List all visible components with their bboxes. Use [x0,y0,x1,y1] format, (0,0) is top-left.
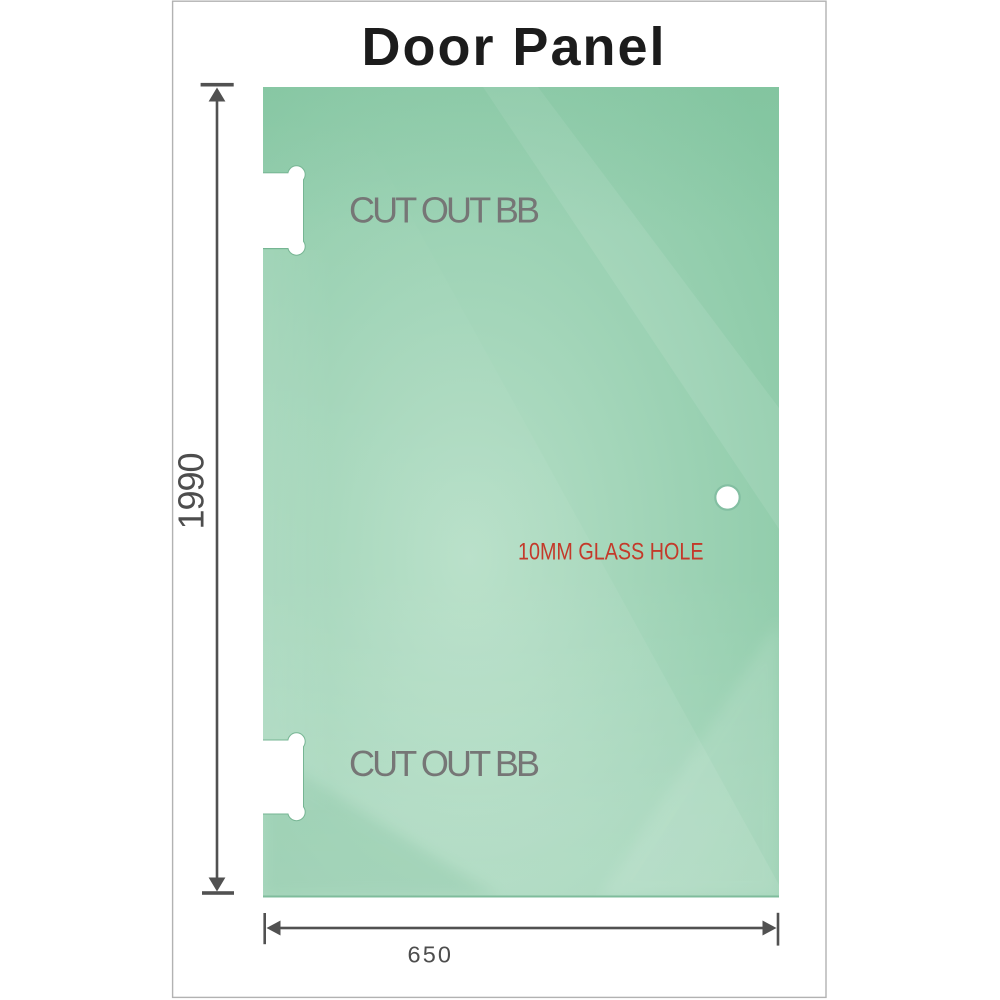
svg-text:Door Panel: Door Panel [362,17,665,77]
svg-text:CUT OUT BB: CUT OUT BB [349,190,540,231]
svg-text:1990: 1990 [171,453,212,530]
svg-text:650: 650 [408,942,452,968]
svg-text:10MM GLASS HOLE: 10MM GLASS HOLE [518,539,704,566]
svg-text:CUT OUT BB: CUT OUT BB [349,743,540,784]
